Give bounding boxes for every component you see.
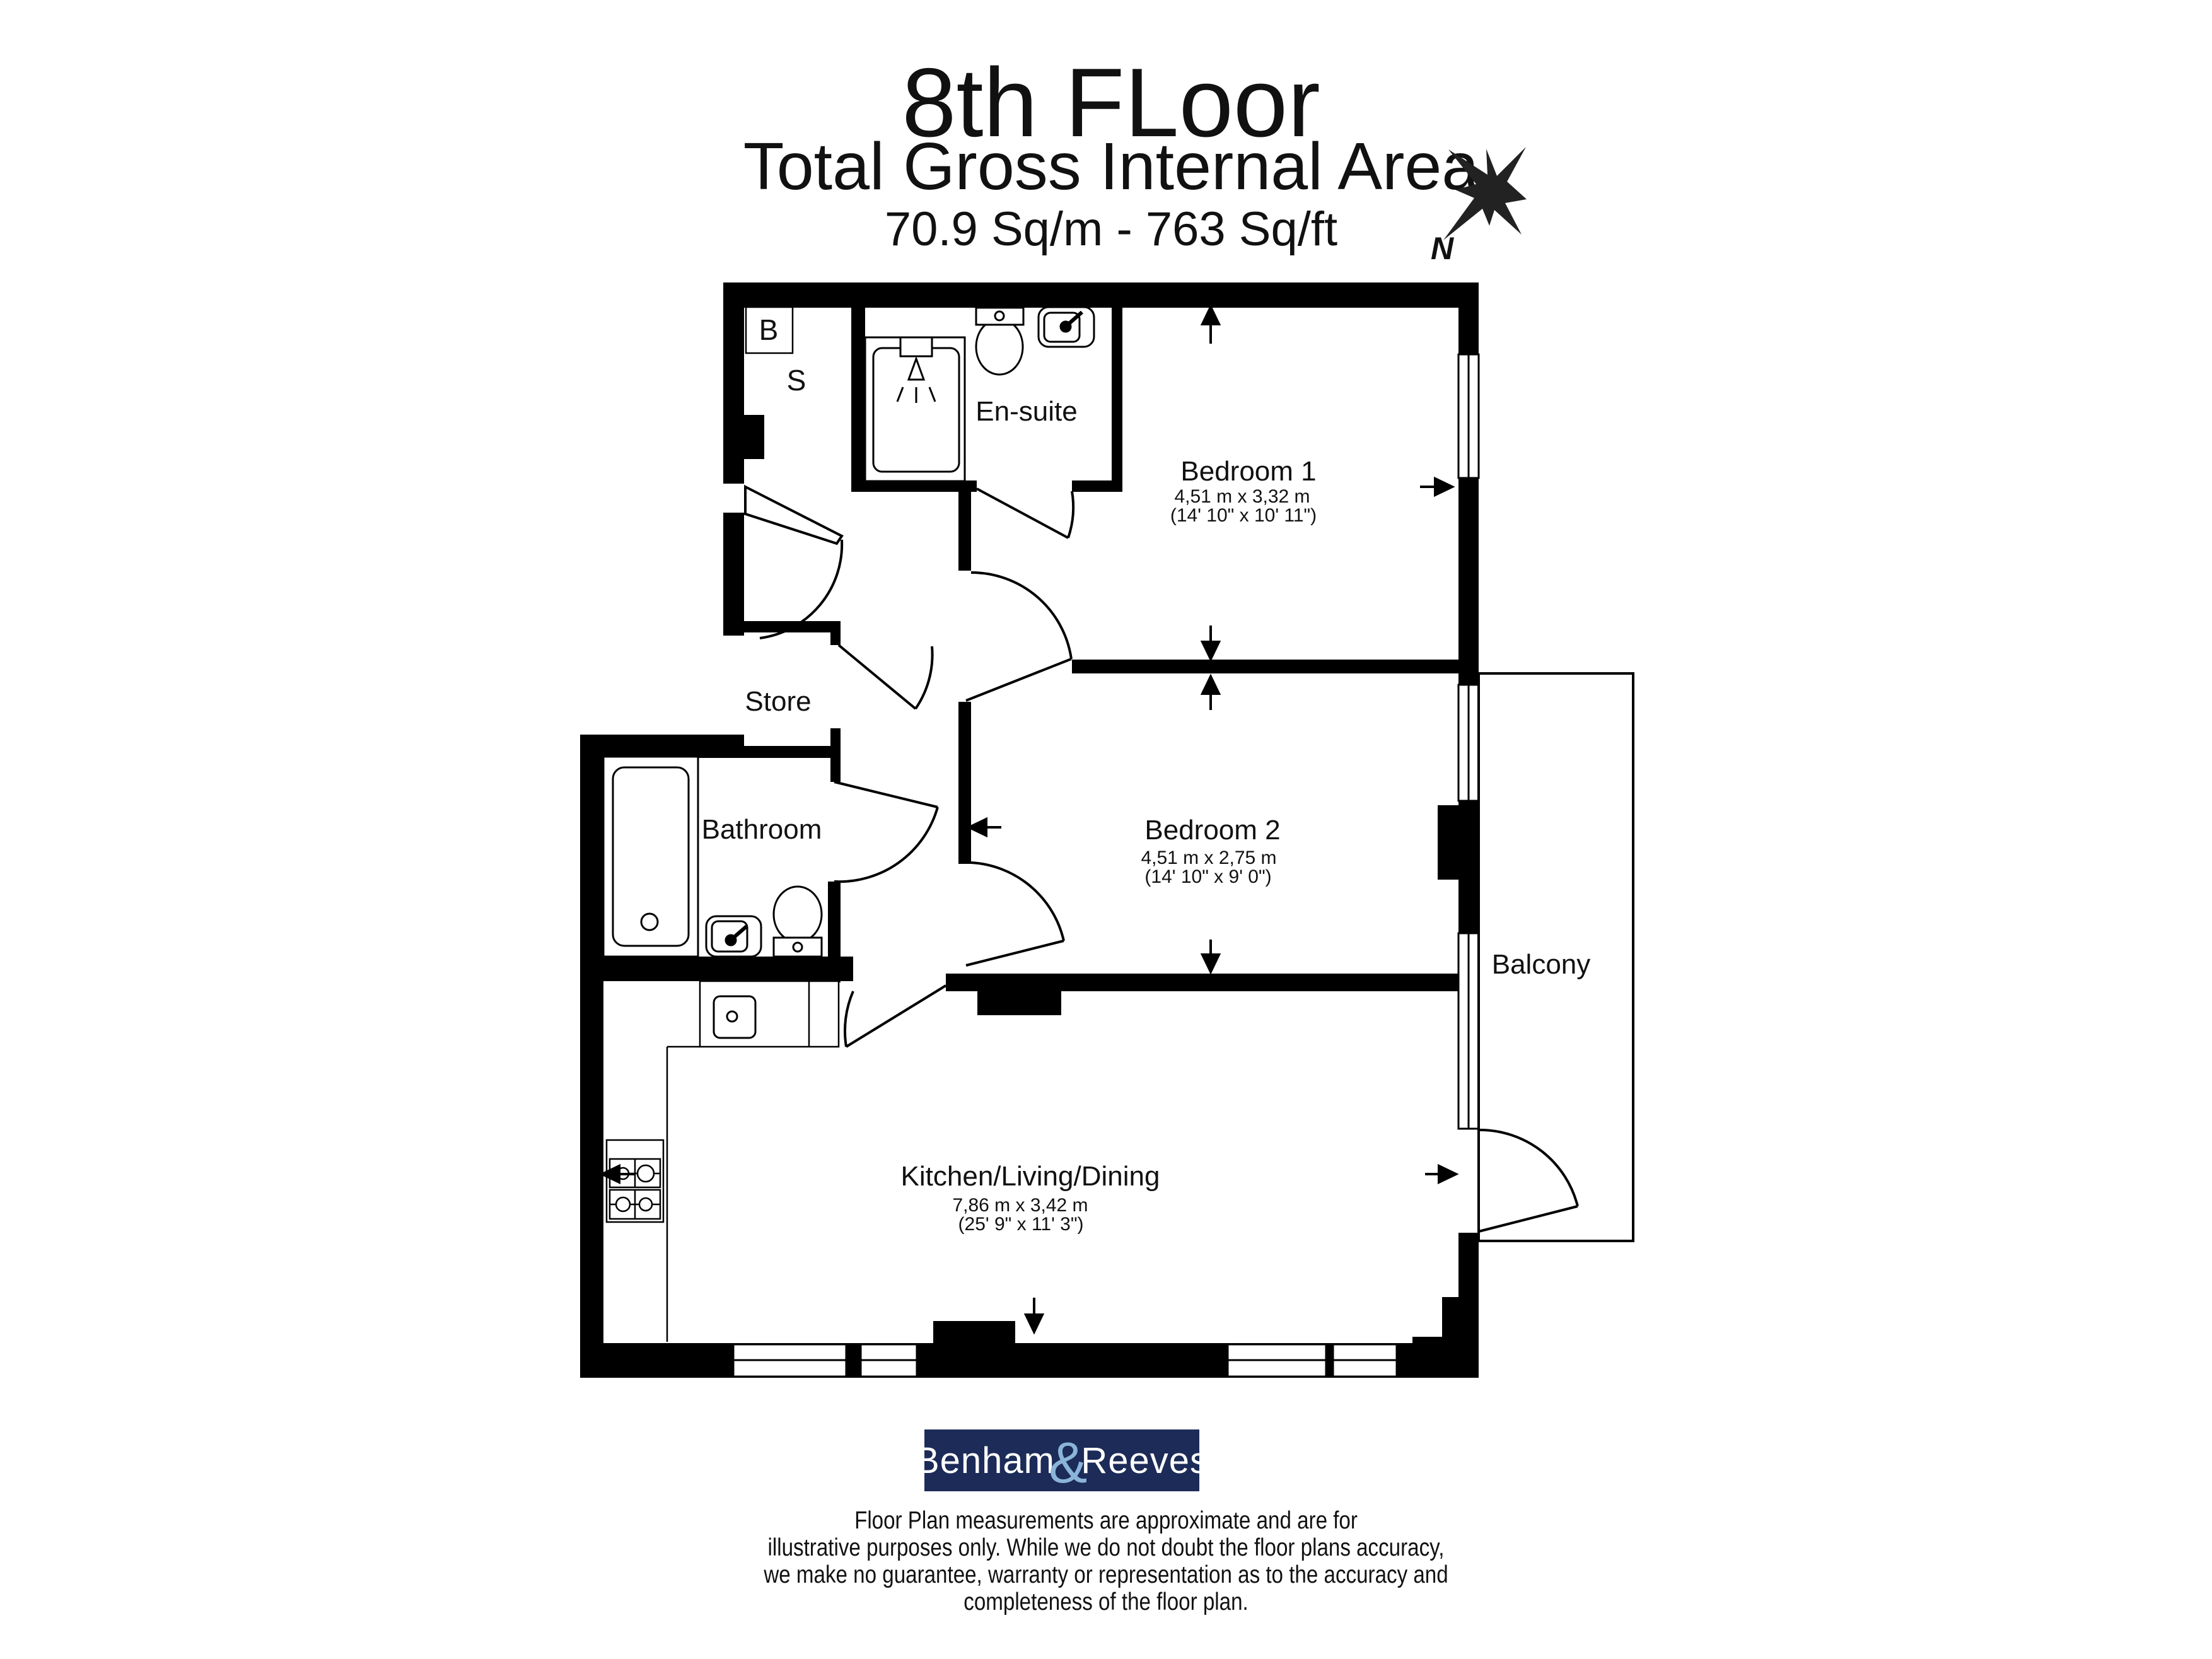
shower-icon <box>865 337 965 481</box>
floor-plan-page: 8th FLoor Total Gross Internal Area 70.9… <box>0 0 2212 1659</box>
ensuite-door <box>977 489 1073 538</box>
ensuite-label: En-suite <box>975 396 1077 428</box>
kitchen-door <box>845 986 946 1047</box>
bedroom1-door <box>966 573 1071 701</box>
kitchen-dim-imperial: (25' 9" x 11' 3") <box>958 1214 1084 1235</box>
closet-b-label: B <box>759 313 779 347</box>
bedroom2-label: Bedroom 2 <box>1144 815 1280 846</box>
arrow-living-right <box>1425 1166 1456 1182</box>
bathroom-door <box>834 782 938 882</box>
balcony-label: Balcony <box>1492 949 1591 981</box>
basin-icon-bathroom <box>706 916 761 957</box>
wall-pier-bottom <box>933 1321 1015 1345</box>
bedroom2-door <box>966 863 1064 965</box>
store-door <box>839 645 933 709</box>
arrow-bedroom2-left <box>969 819 1001 835</box>
compass-star-icon <box>1443 147 1527 240</box>
arrow-bedroom1-right <box>1420 479 1452 495</box>
balcony-door <box>1479 1130 1578 1231</box>
window-bottom-3 <box>1228 1344 1326 1377</box>
disclaimer-text: Floor Plan measurements are approximate … <box>570 1507 1642 1615</box>
disclaimer-line: illustrative purposes only. While we do … <box>570 1534 1642 1561</box>
closet-s-label: S <box>787 363 806 397</box>
kitchen-counter-edge <box>667 1047 700 1342</box>
basin-icon-ensuite <box>1039 307 1094 347</box>
bedroom1-dim-metric: 4,51 m x 3,32 m <box>1174 486 1310 508</box>
bathtub-icon <box>603 757 698 957</box>
store-label: Store <box>745 686 811 718</box>
bedroom1-dim-imperial: (14' 10" x 10' 11") <box>1170 505 1317 527</box>
floor-plan-drawing <box>0 0 2212 1659</box>
windows <box>733 354 1479 1377</box>
kitchen-dim-metric: 7,86 m x 3,42 m <box>952 1195 1088 1216</box>
bedroom2-dim-metric: 4,51 m x 2,75 m <box>1141 847 1276 869</box>
disclaimer-line: Floor Plan measurements are approximate … <box>570 1507 1642 1534</box>
compass-north-label: N <box>1431 230 1453 267</box>
bedroom2-dim-imperial: (14' 10" x 9' 0") <box>1144 866 1271 888</box>
toilet-icon-bathroom <box>774 887 822 957</box>
kitchen-sink-icon <box>700 981 839 1047</box>
arrow-bedroom2-down <box>1202 940 1219 972</box>
logo-text-reeves: Reeves <box>1081 1440 1209 1482</box>
logo-ampersand: & <box>1049 1430 1087 1496</box>
disclaimer-line: we make no guarantee, warranty or repres… <box>570 1561 1642 1588</box>
window-bedroom2 <box>1458 685 1479 801</box>
bedroom1-label: Bedroom 1 <box>1180 456 1316 487</box>
kitchen-living-dining-label: Kitchen/Living/Dining <box>901 1161 1160 1192</box>
arrow-bedroom2-up <box>1202 677 1219 710</box>
window-bottom-4 <box>1333 1344 1397 1377</box>
entrance-door <box>745 487 842 638</box>
arrow-living-down <box>1026 1298 1042 1332</box>
toilet-icon-ensuite <box>976 308 1023 375</box>
bathroom-label: Bathroom <box>702 814 822 846</box>
window-bottom-2 <box>861 1344 917 1377</box>
logo-text-benham: Benham <box>915 1440 1055 1482</box>
window-bedroom1 <box>1458 354 1479 478</box>
arrow-bedroom1-down <box>1202 626 1219 659</box>
disclaimer-line: completeness of the floor plan. <box>570 1588 1642 1615</box>
window-living <box>1458 933 1479 1129</box>
window-bottom-1 <box>733 1344 846 1377</box>
agency-logo: Benham & Reeves <box>924 1429 1199 1491</box>
arrow-bedroom1-up <box>1202 307 1219 344</box>
